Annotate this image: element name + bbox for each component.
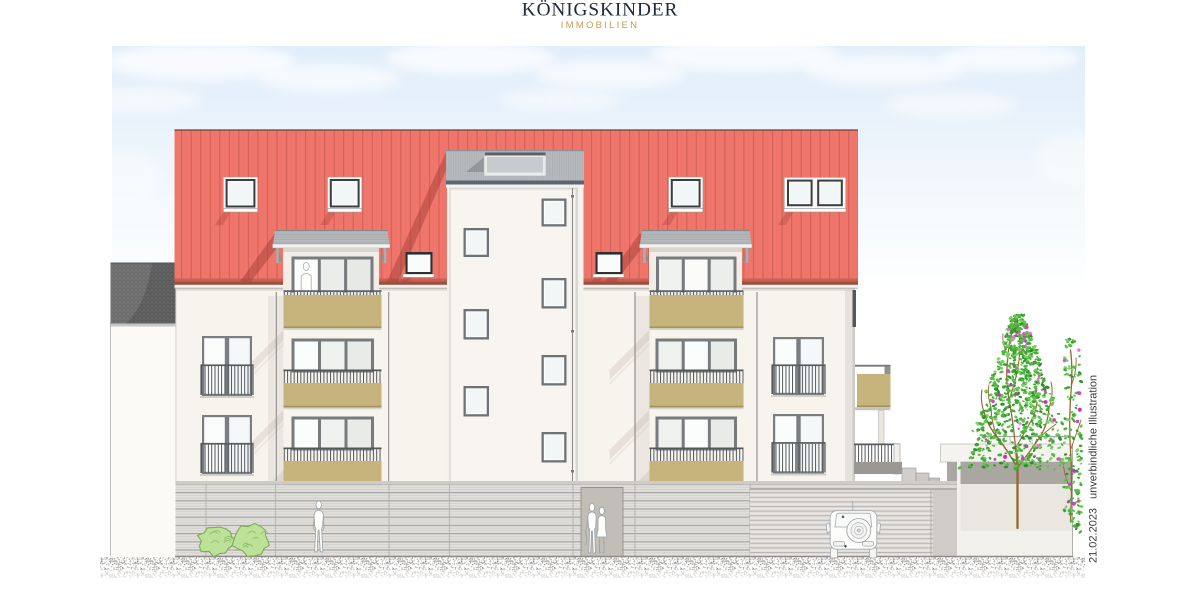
svg-text:KÖNIGSKINDER: KÖNIGSKINDER xyxy=(522,0,678,21)
svg-text:IMMOBILIEN: IMMOBILIEN xyxy=(561,20,640,31)
svg-text:unverbindliche Illustration: unverbindliche Illustration xyxy=(1088,375,1100,499)
svg-text:21.02.2023: 21.02.2023 xyxy=(1088,508,1100,563)
